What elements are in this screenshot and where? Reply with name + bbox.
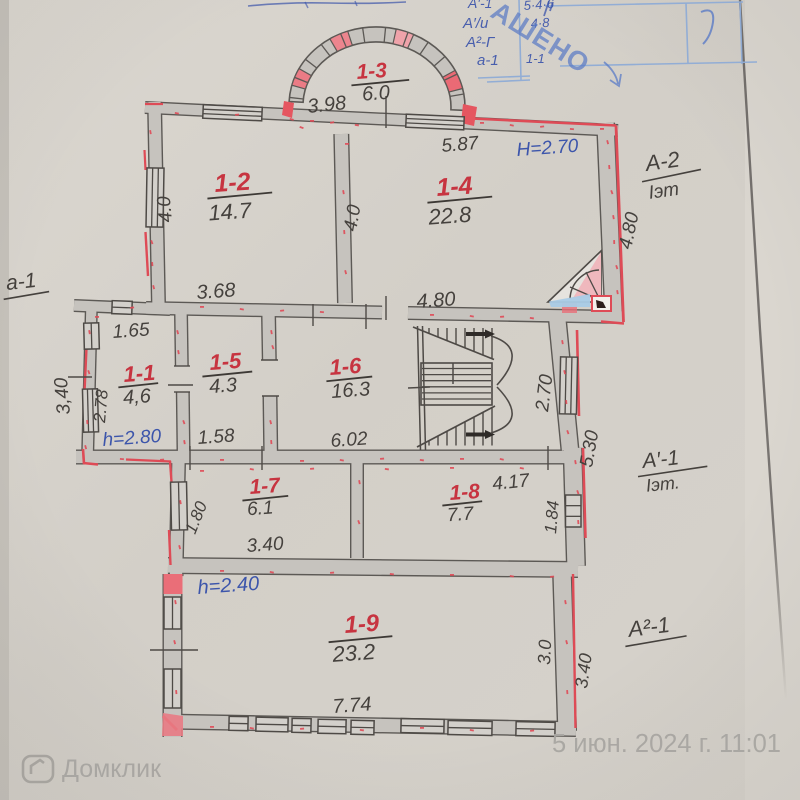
svg-text:6.0: 6.0 (361, 82, 390, 106)
svg-text:1.84: 1.84 (541, 500, 563, 535)
svg-text:А′-1: А′-1 (639, 446, 680, 473)
svg-text:4.0: 4.0 (154, 195, 177, 224)
svg-text:2.78: 2.78 (90, 388, 112, 424)
svg-text:Iэт: Iэт (647, 179, 680, 204)
svg-text:1-6: 1-6 (329, 353, 363, 380)
svg-text:3.98: 3.98 (306, 92, 347, 118)
svg-text:h=2.40: h=2.40 (197, 573, 260, 599)
svg-text:а-1: а-1 (477, 52, 499, 69)
svg-text:7.74: 7.74 (332, 693, 372, 718)
svg-text:а-1: а-1 (5, 269, 38, 295)
svg-text:1-2: 1-2 (213, 168, 251, 198)
svg-text:16.3: 16.3 (330, 378, 370, 403)
svg-text:А²-Г: А²-Г (465, 34, 496, 51)
svg-text:22.8: 22.8 (427, 202, 473, 230)
svg-text:1-3: 1-3 (356, 59, 388, 84)
svg-text:6.1: 6.1 (246, 497, 274, 520)
svg-text:4.3: 4.3 (208, 374, 237, 398)
svg-text:23.2: 23.2 (331, 639, 376, 667)
svg-text:4.80: 4.80 (416, 288, 456, 313)
svg-text:1-5: 1-5 (209, 348, 243, 375)
svg-text:14.7: 14.7 (208, 197, 253, 225)
svg-text:1-4: 1-4 (435, 172, 473, 202)
svg-text:1.65: 1.65 (112, 319, 151, 343)
svg-text:А′/и: А′/и (462, 15, 489, 32)
svg-text:7.7: 7.7 (446, 503, 475, 526)
svg-text:1-1: 1-1 (123, 360, 156, 387)
svg-text:6.02: 6.02 (330, 428, 369, 452)
svg-text:А²-1: А²-1 (625, 612, 671, 642)
svg-text:4.17: 4.17 (491, 470, 531, 495)
svg-text:1-7: 1-7 (249, 474, 282, 499)
svg-text:h=2.80: h=2.80 (102, 426, 162, 451)
svg-text:1-9: 1-9 (344, 610, 381, 639)
svg-text:1.58: 1.58 (197, 425, 236, 449)
svg-text:3,40: 3,40 (51, 376, 75, 415)
svg-text:H=2.70: H=2.70 (516, 136, 580, 161)
svg-text:А-2: А-2 (642, 146, 681, 176)
svg-text:5 июн. 2024 г. 11:01: 5 июн. 2024 г. 11:01 (552, 730, 781, 758)
svg-text:Iэт.: Iэт. (645, 472, 681, 495)
svg-text:3.0: 3.0 (534, 639, 555, 665)
svg-text:3.40: 3.40 (246, 533, 285, 557)
svg-text:Домклик: Домклик (62, 755, 162, 783)
svg-text:5.87: 5.87 (441, 133, 481, 157)
svg-text:3.68: 3.68 (196, 279, 236, 304)
svg-text:4,6: 4,6 (122, 385, 152, 409)
svg-text:А′-1: А′-1 (467, 0, 492, 11)
